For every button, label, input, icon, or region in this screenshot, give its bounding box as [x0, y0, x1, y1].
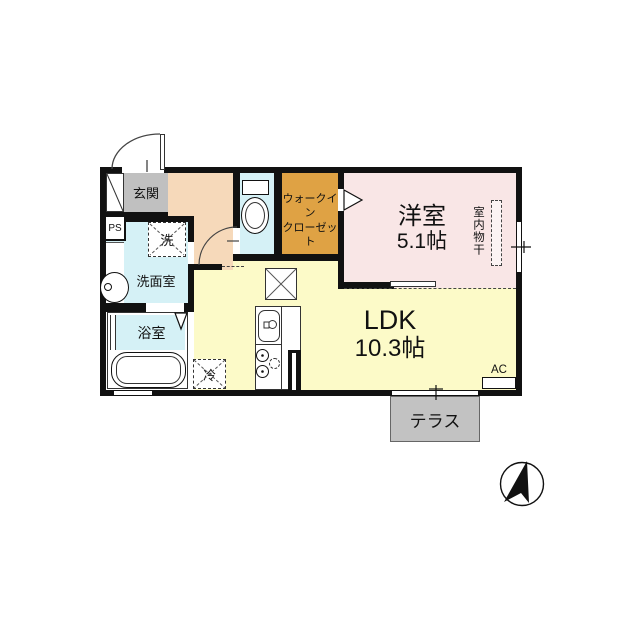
wall-toilet-closet-bottom [233, 254, 344, 261]
washing-machine-label: 洗 [159, 230, 174, 249]
ac-unit-box [482, 377, 516, 389]
entrance-door-leaf [160, 134, 165, 170]
stove-burner-2 [256, 365, 269, 378]
western-room-size: 5.1帖 [357, 230, 487, 254]
bathtub-inner [116, 356, 181, 384]
ldk-size: 10.3帖 [310, 335, 470, 362]
room-genkan: 玄関 [124, 173, 168, 212]
kitchen-faucet [268, 320, 277, 329]
indoor-drying-label: 室内物干 [469, 206, 486, 266]
stove-top-line [255, 344, 281, 345]
bedroom-sliding-door-panel [390, 281, 436, 287]
ps-label: PS [108, 223, 121, 234]
bathroom-door-gap [146, 303, 184, 312]
ldk-label: LDK 10.3帖 [310, 305, 470, 362]
floorplan-canvas: 玄関 PS 洗 洗面室 浴室 ウォークイン クロ [0, 0, 640, 640]
north-compass-icon [495, 458, 549, 512]
wall-toilet-right [274, 173, 282, 256]
stove-burner-1 [256, 349, 269, 362]
kitchen-divider-line [281, 306, 282, 390]
bedroom-window [516, 222, 522, 272]
terrace-label: テラス [410, 407, 461, 432]
refrigerator-box: 冷 [193, 359, 226, 389]
entrance-door-gap [122, 167, 164, 173]
bedroom-sliding-door-track [344, 288, 516, 289]
ps-shaft: PS [104, 215, 126, 241]
stove-burner-3 [269, 358, 280, 369]
refrigerator-label: 冷 [202, 365, 217, 384]
kitchen-cabinet-box [265, 268, 297, 300]
washroom-label: 洗面室 [124, 272, 188, 288]
toilet-bowl-inner [245, 202, 265, 229]
hallway-ldk-opening [222, 266, 244, 267]
ac-label: AC [482, 363, 516, 376]
room-hallway-upper [168, 173, 233, 222]
closet-door-gap [338, 189, 344, 211]
western-room-label: 洋室 5.1帖 [357, 203, 487, 254]
room-hallway-lower [194, 218, 233, 270]
washroom-sink-drain [104, 283, 112, 291]
toilet-tank [242, 180, 269, 195]
bathroom-window [114, 390, 152, 396]
entrance-door-arc [112, 134, 160, 169]
bathroom-label: 浴室 [118, 315, 185, 350]
washing-machine-box: 洗 [148, 222, 186, 257]
washroom-door-gap [188, 242, 194, 266]
kitchen-partition-slit [292, 353, 296, 390]
toilet-door-gap [233, 228, 240, 256]
indoor-drying-pole [491, 200, 502, 266]
terrace: テラス [390, 396, 480, 442]
walk-in-closet-label: ウォークイン クローゼット [282, 192, 338, 249]
shoe-cabinet [106, 173, 124, 212]
wall-hallway-bottom [188, 264, 222, 270]
bathroom-shower-panel [110, 315, 116, 350]
genkan-label: 玄関 [133, 183, 159, 202]
